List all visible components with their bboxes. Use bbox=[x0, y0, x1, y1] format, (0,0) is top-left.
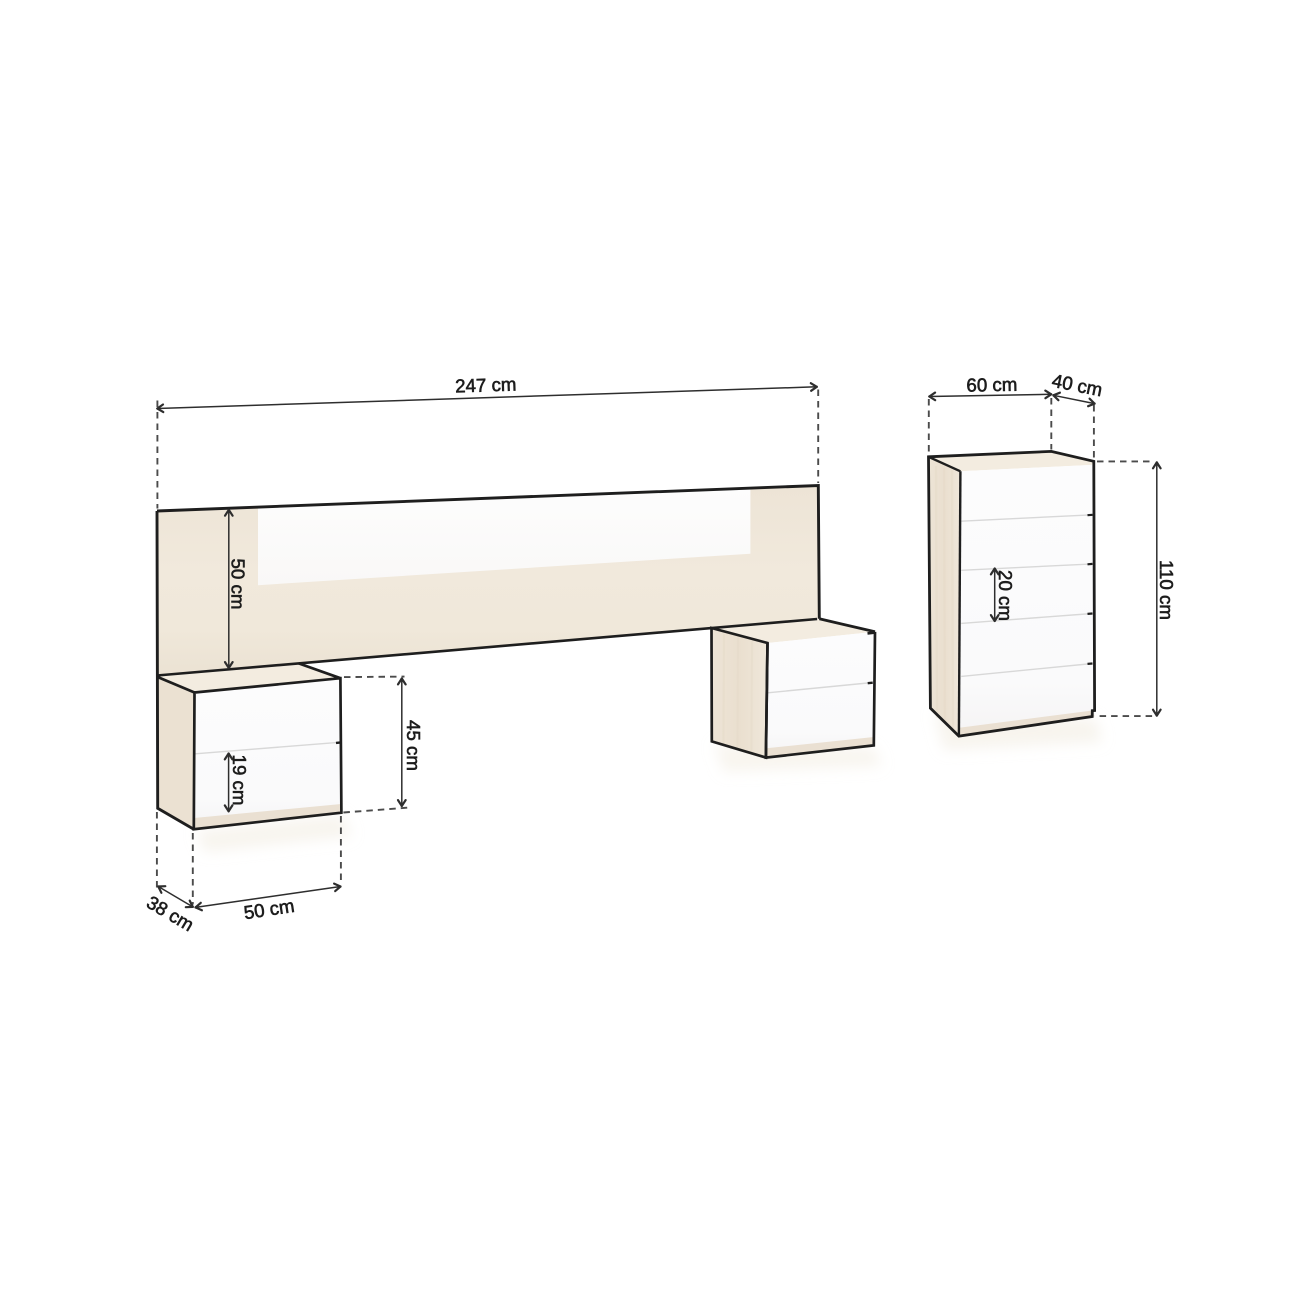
svg-text:20 cm: 20 cm bbox=[995, 570, 1016, 621]
svg-text:50 cm: 50 cm bbox=[228, 559, 249, 610]
svg-text:60 cm: 60 cm bbox=[966, 374, 1017, 396]
svg-text:110 cm: 110 cm bbox=[1156, 560, 1177, 620]
svg-text:247 cm: 247 cm bbox=[455, 373, 517, 396]
svg-text:19 cm: 19 cm bbox=[229, 755, 250, 806]
svg-text:45 cm: 45 cm bbox=[403, 720, 424, 771]
